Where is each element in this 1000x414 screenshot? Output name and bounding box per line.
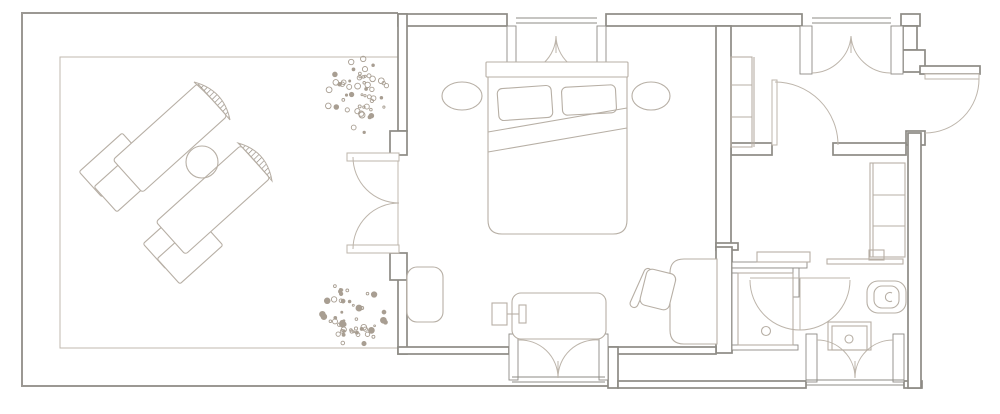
curtain-bedroom-bottom-window [518,340,599,378]
terrace-door-jamb-bottom [390,253,407,280]
tv-screen [519,305,526,323]
plant-stipple [356,305,362,311]
window-jamb [806,334,817,382]
plant-stipple [339,289,342,292]
plant-stipple [355,83,361,89]
plant-stipple [361,94,363,96]
plant-stipple [370,87,374,91]
wall-south-bedroom-right [608,347,716,354]
plant-stipple [329,320,332,323]
plant-stipple [343,330,346,333]
toilet-seat [874,286,899,308]
plant-stipple [345,94,347,96]
plant-stipple [366,292,369,295]
wall-bedroom-entry [716,26,731,247]
plant-stipple [343,320,345,322]
plant-stipple [347,84,352,89]
headboard [486,62,628,77]
plant-stipple [363,131,365,133]
wall-entry-right [903,26,917,50]
plant-stipple [324,298,330,304]
floor-plan-drawing [0,0,1000,414]
pouf [407,267,443,322]
plant-stipple [359,72,362,75]
wall-south-bedroom-left [398,347,509,354]
plant-stipple [384,320,388,324]
plant-stipple [346,289,349,292]
plant-stipple [355,331,358,334]
plant-stipple [354,327,357,330]
corridor-wardrobe [870,163,905,257]
shower-tray [738,273,793,345]
counter [757,252,810,262]
plant-stipple [365,88,368,91]
plant-stipple [326,103,332,109]
tv-base [492,303,507,325]
floor-plan-page [0,0,1000,414]
bathroom [738,273,906,350]
plant-stipple [326,87,332,93]
bedside-table-left [442,82,482,110]
plant-stipple [341,299,345,303]
entry-exterior-door [925,74,979,133]
toilet [867,281,906,313]
curtain-entry-door [812,36,891,73]
double-bed [486,62,628,234]
plant-stipple [334,285,337,288]
terrace-door-jamb-top [390,131,407,155]
entry-hall [731,57,754,147]
plant-stipple [362,67,367,72]
plant-stipple [333,80,339,86]
entry-jamb [800,26,812,74]
terrace-french-doors [347,153,399,253]
plant-stipple [333,72,338,77]
shower-wall-bottom [732,345,798,350]
plant-stipple [334,105,339,110]
plant-stipple [364,75,366,77]
shower-door-stub [793,268,799,297]
plant-stipple [352,68,355,71]
desk-chair [629,267,677,311]
vanity-shelf [827,259,903,264]
wall-left-lower [398,279,407,354]
plant-cluster-top [326,56,389,133]
washbasin [828,322,871,350]
plant-stipple [372,335,375,338]
plant-stipple [365,332,369,336]
plant-stipple [380,96,383,99]
basin-drain [845,335,853,343]
window-jamb [509,334,518,380]
plant-stipple [363,82,366,85]
plant-stipple [334,317,337,320]
shower-wall-left [732,268,738,350]
desk [670,259,717,344]
plant-stipple [367,74,371,78]
plant-stipple [372,64,375,67]
round-side-table [186,146,218,178]
plant-stipple [364,95,366,97]
bedside-table-right [632,82,670,110]
wall-top-right [901,14,920,26]
plant-stipple [362,342,366,346]
plant-stipple [341,341,345,345]
plant-stipple [358,105,361,108]
plant-stipple [331,297,336,302]
plant-stipple [352,304,354,306]
plant-stipple [382,310,386,314]
plant-stipple [383,106,385,108]
window-jamb [599,334,608,380]
plant-stipple [349,59,354,64]
plant-stipple [374,325,376,327]
plant-stipple [349,92,353,96]
plant-stipple [342,99,345,102]
plant-stipple [320,311,326,317]
plant-stipple [370,108,373,111]
plant-cluster-bottom [320,285,388,346]
tv-on-stand [492,303,526,325]
basin [832,326,867,350]
plant-stipple [345,108,349,112]
entry-jamb [891,26,903,74]
plant-stipple [355,318,358,321]
plant-stipple [351,125,356,130]
plant-stipple [349,80,351,82]
bedroom-furniture [407,62,717,344]
shower-wall-top [732,268,798,273]
wall-left-upper [398,14,407,131]
wall-bathroom-north [732,262,807,268]
plant-stipple [371,292,376,297]
plant-stipple [359,76,361,78]
plant-stipple [368,116,371,119]
wall-top-left [398,14,507,26]
wall-right [908,133,921,388]
entry-closet [731,57,752,147]
wall-south-connector [608,347,618,388]
window-jamb [893,334,904,382]
pillow [497,85,553,121]
plant-stipple [348,300,351,303]
plant-stipple [341,311,343,313]
plant-stipple [336,332,340,336]
plant-stipple [342,333,345,336]
plant-stipple [378,78,384,84]
wall-porch [920,66,980,74]
dressing-corridor [757,163,905,264]
wall-south-bathroom-left [618,381,806,388]
wall-top-middle [606,14,802,26]
shower-drain [762,327,771,336]
plant-stipple [340,321,346,327]
entry-interior-door [772,80,838,145]
wall-entry-south-right [833,143,906,155]
wall-bedroom-bath [716,247,732,353]
